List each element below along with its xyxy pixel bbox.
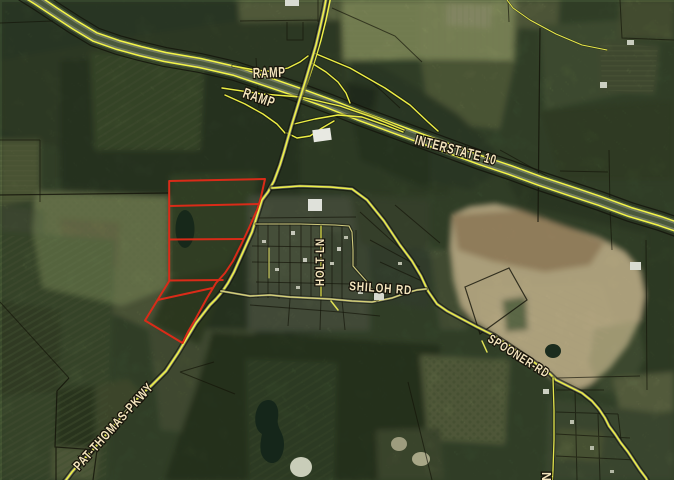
svg-text:N: N (540, 471, 554, 480)
svg-text:HOLT-LN: HOLT-LN (315, 238, 327, 286)
svg-text:RAMP: RAMP (253, 65, 287, 82)
